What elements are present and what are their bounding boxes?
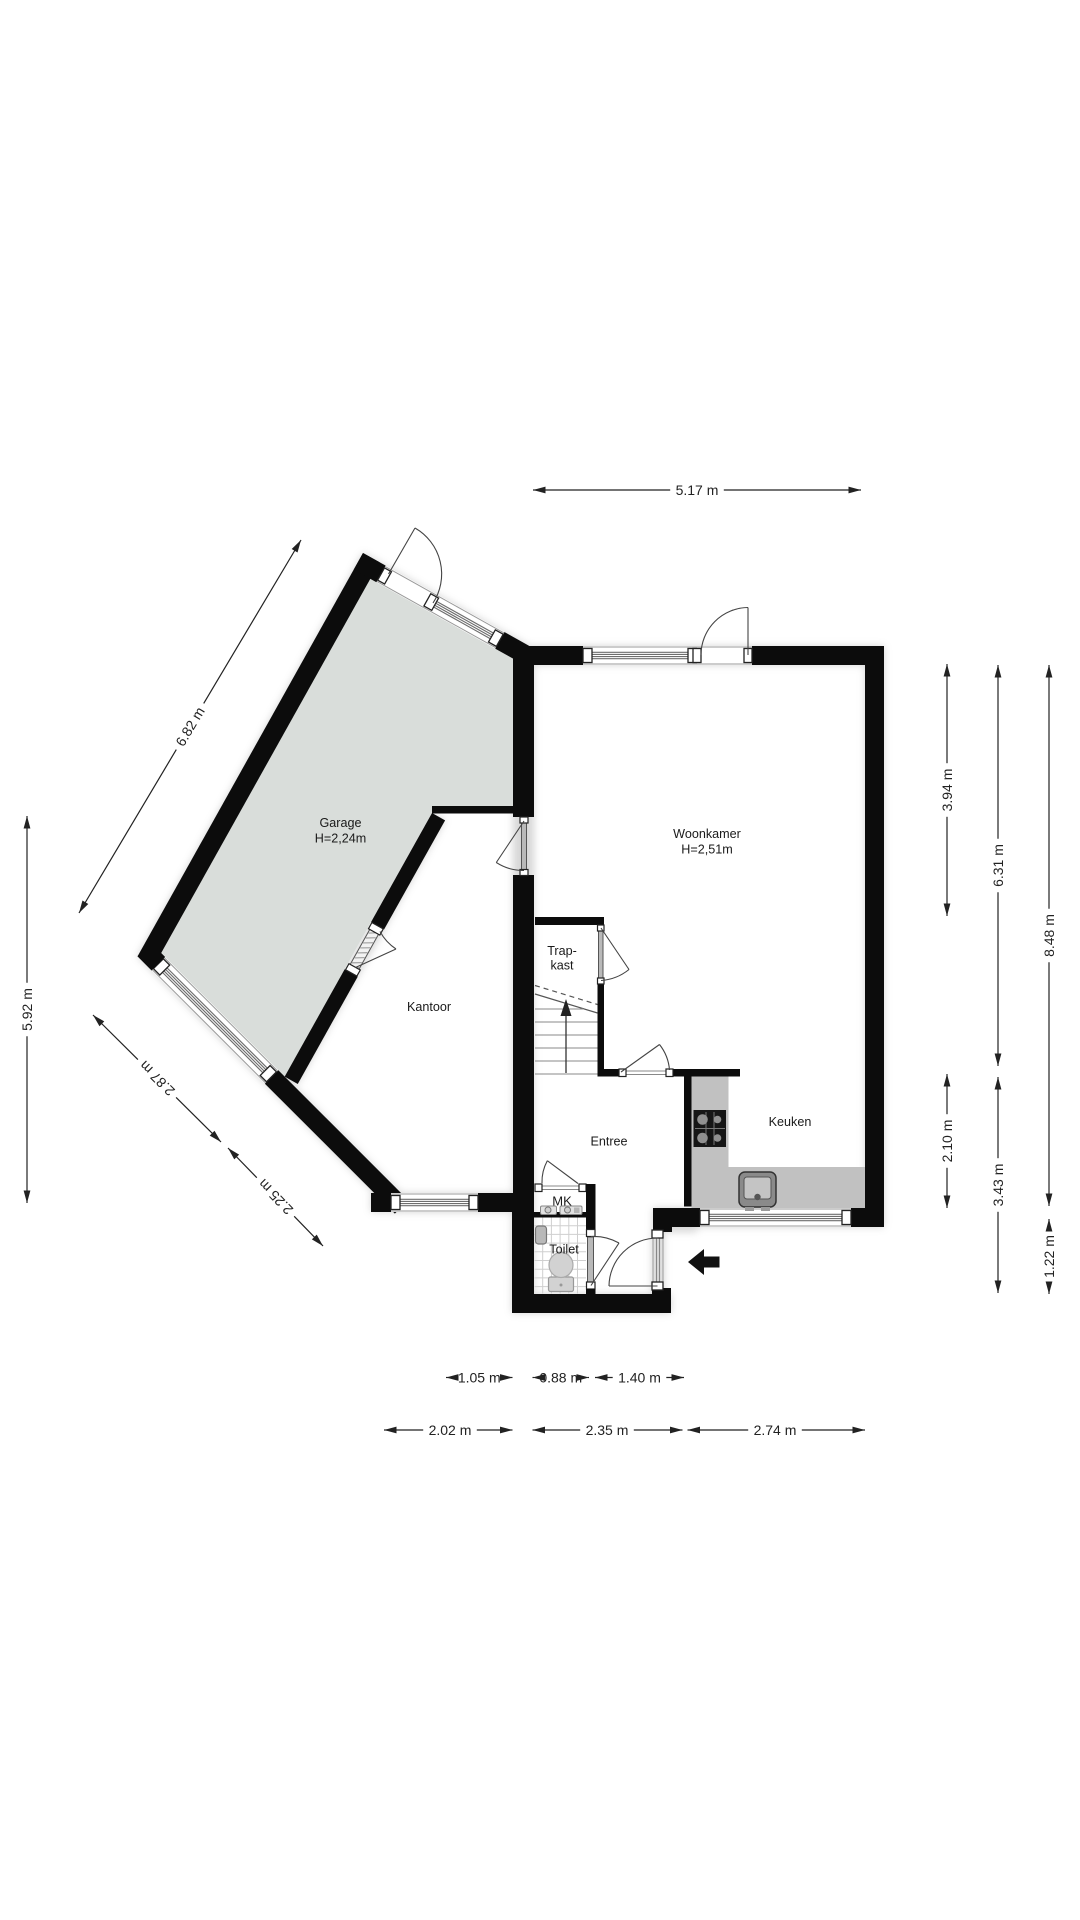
- svg-text:MK: MK: [552, 1194, 572, 1209]
- svg-text:5.92 m: 5.92 m: [19, 988, 35, 1031]
- svg-text:3.94 m: 3.94 m: [939, 769, 955, 812]
- svg-text:Toilet: Toilet: [549, 1243, 579, 1257]
- svg-text:8.48 m: 8.48 m: [1041, 914, 1057, 957]
- svg-text:2.10 m: 2.10 m: [939, 1120, 955, 1163]
- svg-text:Trap-: Trap-: [547, 944, 577, 958]
- svg-text:6.31 m: 6.31 m: [990, 844, 1006, 887]
- svg-text:Keuken: Keuken: [769, 1115, 812, 1129]
- svg-text:Garage: Garage: [319, 816, 361, 830]
- svg-text:2.02 m: 2.02 m: [429, 1422, 472, 1438]
- svg-text:1.40 m: 1.40 m: [618, 1370, 661, 1386]
- svg-text:kast: kast: [550, 959, 574, 973]
- svg-text:1.22 m: 1.22 m: [1041, 1235, 1057, 1278]
- svg-text:2.74 m: 2.74 m: [754, 1422, 797, 1438]
- svg-text:3.43 m: 3.43 m: [990, 1164, 1006, 1207]
- svg-text:Entree: Entree: [590, 1135, 627, 1149]
- svg-text:5.17 m: 5.17 m: [676, 482, 719, 498]
- svg-text:Kantoor: Kantoor: [407, 1000, 451, 1014]
- svg-text:2.35 m: 2.35 m: [586, 1422, 629, 1438]
- svg-text:H=2,24m: H=2,24m: [315, 832, 366, 846]
- svg-text:H=2,51m: H=2,51m: [681, 843, 732, 857]
- svg-text:0.88 m: 0.88 m: [539, 1370, 582, 1386]
- svg-text:1.05 m: 1.05 m: [458, 1370, 501, 1386]
- svg-text:Woonkamer: Woonkamer: [673, 827, 741, 841]
